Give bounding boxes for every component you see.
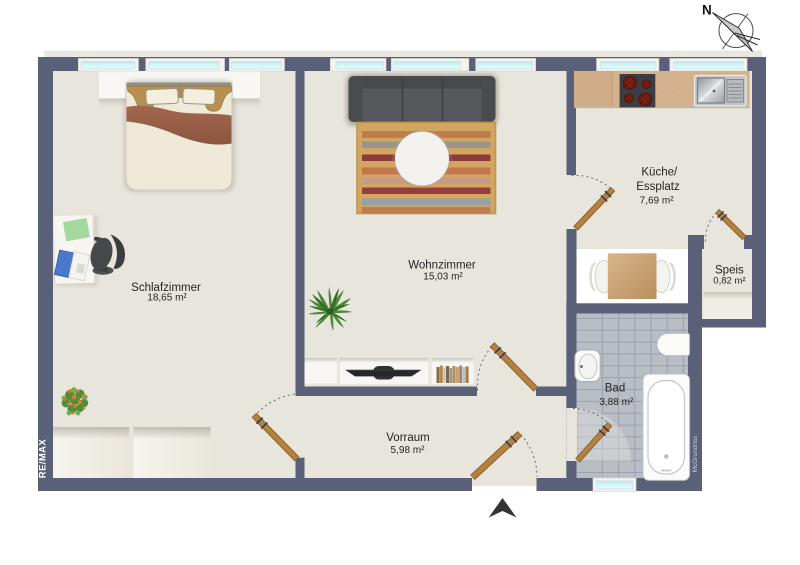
svg-text:3,88 m²: 3,88 m² — [599, 397, 634, 408]
svg-text:RE/MAX: RE/MAX — [38, 439, 49, 479]
svg-text:N: N — [702, 3, 712, 18]
svg-text:Wohnzimmer: Wohnzimmer — [408, 259, 476, 271]
svg-text:Vorraum: Vorraum — [386, 432, 429, 444]
svg-text:Küche/: Küche/ — [641, 167, 678, 179]
svg-text:Bad: Bad — [605, 383, 625, 395]
svg-text:0,82 m²: 0,82 m² — [713, 276, 745, 287]
svg-text:18,65 m²: 18,65 m² — [147, 293, 187, 304]
svg-text:7,69 m²: 7,69 m² — [640, 195, 675, 206]
svg-text:McGrundriss: McGrundriss — [692, 435, 699, 473]
svg-text:5,98 m²: 5,98 m² — [391, 445, 426, 456]
svg-text:15,03 m²: 15,03 m² — [423, 272, 463, 283]
svg-text:Essplatz: Essplatz — [636, 181, 680, 193]
